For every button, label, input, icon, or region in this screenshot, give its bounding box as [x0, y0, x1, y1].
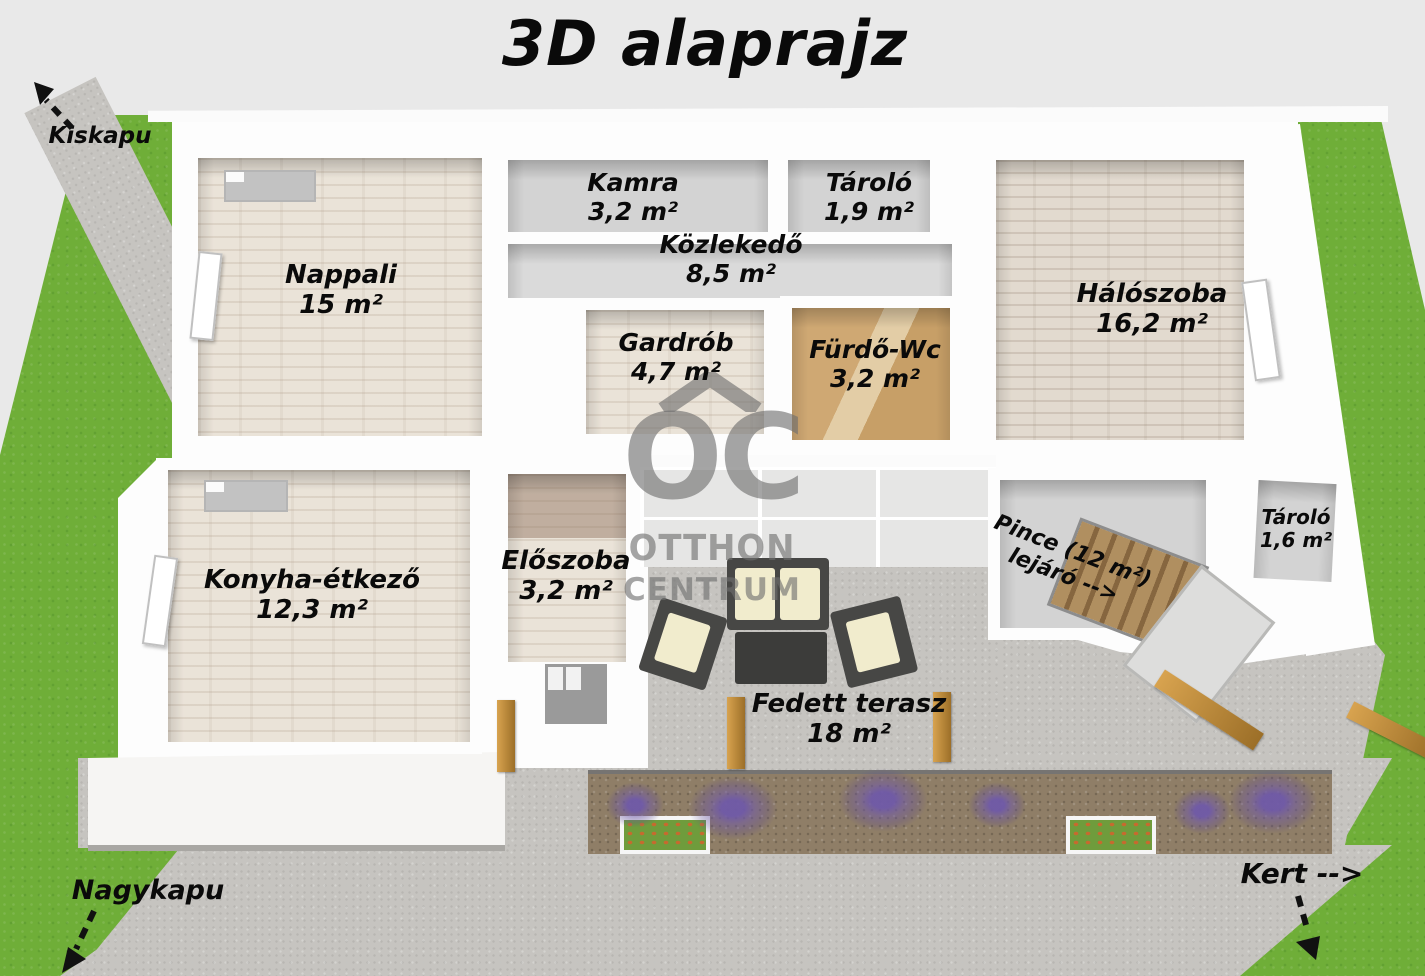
front-facade [88, 752, 505, 851]
room-name: Tároló [1260, 506, 1332, 529]
ac-vent [224, 170, 316, 202]
label-kozlekedo: Közlekedő 8,5 m² [659, 230, 802, 288]
room-area: 1,6 m² [1260, 529, 1332, 552]
terrace-coffee-table [735, 632, 827, 684]
label-gardrob: Gardrób 4,7 m² [618, 328, 733, 386]
watermark-text-centrum: CENTRUM [622, 572, 802, 608]
room-area: 8,5 m² [659, 259, 802, 288]
room-name: Kamra [587, 168, 679, 197]
label-nappali: Nappali 15 m² [285, 260, 397, 320]
room-name: Fürdő-Wc [809, 335, 941, 364]
room-name: Nappali [285, 260, 397, 290]
lavender-plant [838, 768, 928, 832]
room-name: Tároló [824, 168, 914, 197]
kert-arrow-icon [1278, 892, 1330, 962]
label-fedett-terasz: Fedett terasz 18 m² [752, 689, 947, 749]
flower-bed [588, 770, 1332, 854]
label-eloszoba: Előszoba 3,2 m² [501, 546, 630, 606]
room-name: Gardrób [618, 328, 733, 357]
label-kert: Kert --> [1241, 858, 1364, 890]
fence [148, 106, 1388, 122]
room-name: Fedett terasz [752, 689, 947, 719]
room-area: 12,3 m² [204, 595, 420, 625]
page-title: 3D alaprajz [502, 8, 908, 80]
label-nagykapu: Nagykapu [72, 875, 224, 906]
room-area: 3,2 m² [501, 576, 630, 606]
lavender-plant [968, 782, 1026, 828]
room-area: 1,9 m² [824, 197, 914, 226]
chair-cushion [845, 612, 900, 673]
front-door [545, 664, 607, 724]
room-area: 4,7 m² [618, 357, 733, 386]
label-furdo-wc: Fürdő-Wc 3,2 m² [809, 335, 941, 393]
terrace-post [497, 700, 515, 772]
room-area: 3,2 m² [809, 364, 941, 393]
label-haloszoba: Hálószoba 16,2 m² [1077, 279, 1228, 339]
lavender-plant [688, 776, 778, 840]
label-tarolo-north: Tároló 1,9 m² [824, 168, 914, 226]
room-area: 18 m² [752, 719, 947, 749]
watermark-text-otthon: OTTHON [627, 528, 796, 569]
floor-plan-scene: OC OTTHON CENTRUM 3D alaprajz Kiskapu Na… [0, 0, 1425, 976]
lavender-plant [606, 782, 664, 828]
planter-box [1066, 816, 1156, 854]
room-area: 3,2 m² [587, 197, 679, 226]
nagykapu-arrow-icon [52, 905, 108, 975]
ac-vent [204, 480, 288, 512]
kiskapu-arrow-icon [26, 80, 78, 132]
room-name: Előszoba [501, 546, 630, 576]
label-tarolo-small: Tároló 1,6 m² [1260, 506, 1332, 552]
room-name: Hálószoba [1077, 279, 1228, 309]
room-name: Közlekedő [659, 230, 802, 259]
lavender-plant [1228, 770, 1318, 834]
lavender-plant [1173, 788, 1231, 834]
label-kamra: Kamra 3,2 m² [587, 168, 679, 226]
terrace-post [727, 697, 745, 769]
label-konyha-etkezo: Konyha-étkező 12,3 m² [204, 565, 420, 625]
room-area: 16,2 m² [1077, 309, 1228, 339]
watermark-logo: OC [622, 398, 802, 516]
room-area: 15 m² [285, 290, 397, 320]
room-name: Konyha-étkező [204, 565, 420, 595]
chair-cushion [654, 612, 711, 673]
